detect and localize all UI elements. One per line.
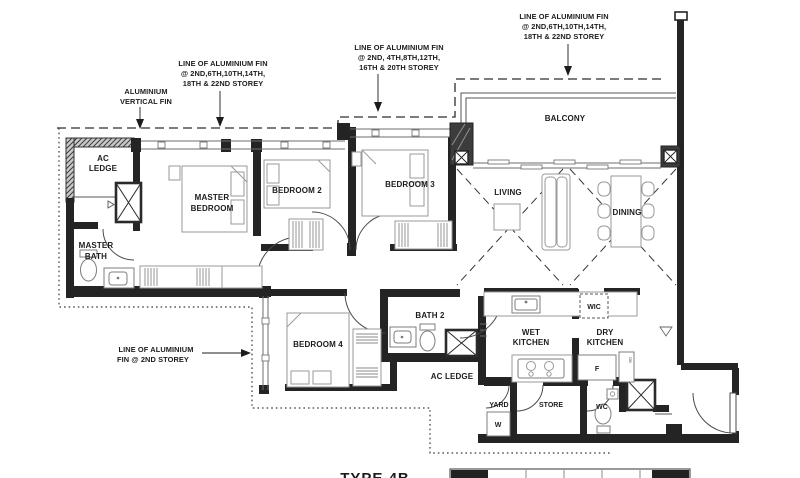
wall-segment bbox=[131, 138, 141, 152]
wall-segment bbox=[74, 222, 98, 229]
bedroom3-wardrobe bbox=[395, 221, 452, 249]
bed-pillow bbox=[410, 154, 424, 178]
wall-segment bbox=[348, 127, 356, 245]
sliding-panel bbox=[620, 160, 641, 164]
wet-kitchen-label: WET bbox=[522, 328, 540, 337]
fin-right-label: LINE OF ALUMINIUM FIN bbox=[519, 12, 608, 21]
dining-chair bbox=[598, 204, 610, 218]
basin-tap bbox=[401, 336, 404, 339]
kitchen-counter bbox=[484, 292, 637, 316]
floor-plan-canvas: ALUMINIUM VERTICAL FIN LINE OF ALUMINIUM… bbox=[0, 0, 800, 478]
fin-mid-label: LINE OF ALUMINIUM FIN bbox=[354, 43, 443, 52]
basin-tap bbox=[117, 277, 120, 280]
master-bath-label: BATH bbox=[85, 252, 107, 261]
ac-ledge-top-label: AC bbox=[97, 154, 109, 163]
wall-cap bbox=[675, 12, 687, 20]
master-bedroom-label: MASTER bbox=[195, 193, 230, 202]
entrance-door bbox=[693, 393, 733, 433]
sink-tap bbox=[525, 301, 528, 304]
boundary-wall bbox=[677, 14, 684, 365]
bed-pillow bbox=[291, 371, 309, 384]
dresser bbox=[222, 266, 262, 288]
dining-chair bbox=[642, 204, 654, 218]
fin-left-label: 18TH & 22ND STOREY bbox=[183, 79, 264, 88]
bedroom2-wardrobe bbox=[289, 219, 323, 250]
wall-segment bbox=[732, 368, 739, 395]
wall-segment bbox=[580, 382, 587, 438]
bedroom2-label: BEDROOM 2 bbox=[272, 186, 322, 195]
window-tick bbox=[372, 130, 379, 136]
type-label-clipped: TYPE 4B bbox=[340, 470, 410, 478]
bedroom3-door bbox=[356, 214, 392, 250]
bed-pillow bbox=[267, 164, 279, 183]
dry-kitchen-label: KITCHEN bbox=[587, 338, 624, 347]
wc-label: WC bbox=[596, 404, 608, 411]
window-tick bbox=[158, 142, 165, 148]
arrow-down bbox=[374, 102, 382, 112]
dry-kitchen-label: DRY bbox=[596, 328, 614, 337]
toilet-bowl bbox=[420, 331, 435, 351]
wall-segment bbox=[666, 424, 682, 435]
window-tick bbox=[412, 130, 419, 136]
fin-right-label: 18TH & 22ND STOREY bbox=[524, 32, 605, 41]
fin-2nd-storey-label: FIN @ 2ND STOREY bbox=[117, 355, 189, 364]
bath2-label: BATH 2 bbox=[415, 311, 445, 320]
fin-mid-label: @ 2ND, 4TH,8TH,12TH, bbox=[358, 53, 440, 62]
floor-trap-marker bbox=[660, 327, 672, 336]
store-label: STORE bbox=[539, 402, 563, 409]
wall-segment bbox=[478, 434, 739, 443]
sliding-panel bbox=[587, 165, 608, 169]
wall-segment bbox=[484, 377, 512, 386]
scale-bar-segment bbox=[652, 470, 689, 478]
balcony-label: BALCONY bbox=[545, 114, 586, 123]
coffee-table bbox=[494, 204, 520, 230]
fin-left-label: @ 2ND,6TH,10TH,14TH, bbox=[181, 69, 265, 78]
hatched-wall bbox=[66, 138, 134, 147]
floor-plan-drawing: ALUMINIUM VERTICAL FIN LINE OF ALUMINIUM… bbox=[0, 0, 800, 478]
balcony-structure bbox=[450, 93, 680, 169]
arrow-right bbox=[241, 349, 251, 357]
yard-label: YARD bbox=[489, 402, 508, 409]
dining-chair bbox=[598, 182, 610, 196]
bedroom3-label: BEDROOM 3 bbox=[385, 180, 435, 189]
wc-basin bbox=[607, 389, 618, 399]
sliding-panel bbox=[521, 165, 542, 169]
fin-right-label: @ 2ND,6TH,10TH,14TH, bbox=[522, 22, 606, 31]
living-label: LIVING bbox=[494, 188, 522, 197]
wall-segment bbox=[510, 382, 517, 438]
sliding-panel bbox=[488, 160, 509, 164]
fin-mid-label: 16TH & 20TH STOREY bbox=[359, 63, 439, 72]
db-riser-label: DB bbox=[628, 357, 633, 363]
nightstand bbox=[352, 152, 361, 166]
scale-bar-segment bbox=[451, 470, 488, 478]
window-tick bbox=[281, 142, 288, 148]
hatched-wall bbox=[66, 138, 74, 202]
wall-segment bbox=[619, 382, 626, 412]
bedroom4-door bbox=[345, 293, 385, 333]
wet-kitchen-label: KITCHEN bbox=[513, 338, 550, 347]
scale-bar bbox=[450, 469, 690, 478]
fridge-label: F bbox=[595, 366, 600, 373]
ac-ledge-top-label: LEDGE bbox=[89, 164, 118, 173]
cooktop bbox=[518, 359, 564, 378]
wic-label: WIC bbox=[587, 304, 601, 311]
window-mullion bbox=[337, 123, 350, 140]
fin-2nd-storey-label: LINE OF ALUMINIUM bbox=[119, 345, 194, 354]
dining-chair bbox=[642, 226, 654, 240]
wc-toilet-tank bbox=[597, 426, 610, 433]
window-tick bbox=[262, 318, 269, 324]
wall-segment bbox=[383, 289, 460, 297]
fin-left-label: LINE OF ALUMINIUM FIN bbox=[178, 59, 267, 68]
window-tick bbox=[262, 355, 269, 361]
master-bath-label: MASTER bbox=[79, 241, 114, 250]
alu-vertical-fin-label: ALUMINIUM bbox=[124, 87, 167, 96]
ac-ledge-bottom-label: AC LEDGE bbox=[431, 372, 474, 381]
bed-pillow bbox=[231, 172, 244, 196]
window-tick bbox=[323, 142, 330, 148]
wall-segment bbox=[262, 289, 347, 296]
bedroom4-label: BEDROOM 4 bbox=[293, 340, 343, 349]
toilet-tank bbox=[420, 324, 435, 330]
duct-marker bbox=[108, 201, 114, 208]
dining-chair bbox=[598, 226, 610, 240]
alu-vertical-fin-label: VERTICAL FIN bbox=[120, 97, 172, 106]
bed-pillow bbox=[313, 371, 331, 384]
footer: TYPE 4B bbox=[340, 469, 690, 478]
wall-segment bbox=[681, 363, 738, 370]
sliding-panel bbox=[554, 160, 575, 164]
master-bedroom-label: BEDROOM bbox=[191, 204, 234, 213]
washer-label: W bbox=[495, 422, 502, 429]
entrance-door-leaf bbox=[730, 393, 736, 433]
arrow-down bbox=[216, 117, 224, 127]
wall-segment bbox=[253, 150, 261, 236]
nightstand bbox=[169, 166, 180, 180]
master-wardrobe bbox=[140, 266, 222, 288]
dining-label: DINING bbox=[613, 208, 642, 217]
wall-segment bbox=[66, 198, 74, 298]
toilet-bowl bbox=[81, 259, 97, 281]
window-tick bbox=[200, 142, 207, 148]
arrow-down bbox=[564, 66, 572, 76]
dining-chair bbox=[642, 182, 654, 196]
